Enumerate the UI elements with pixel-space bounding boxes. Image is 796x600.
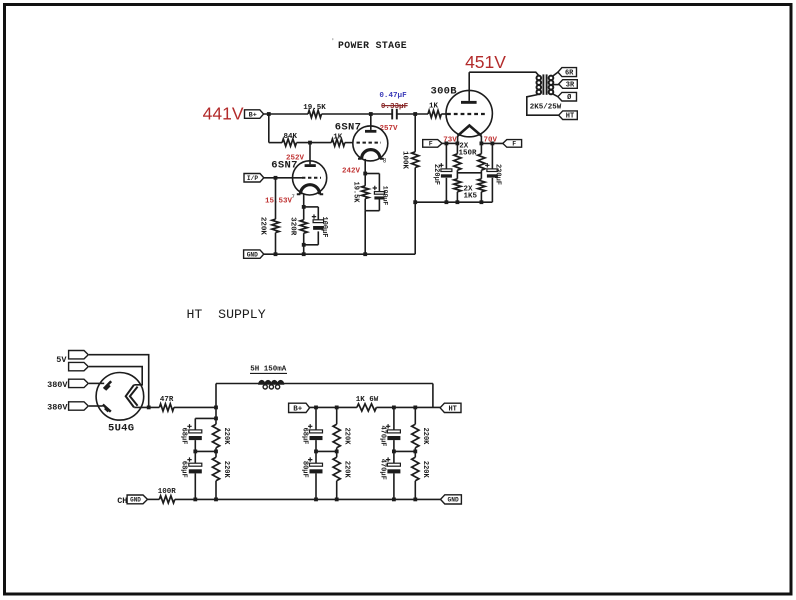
svg-text:1K5: 1K5 bbox=[463, 192, 477, 200]
svg-text:242V: 242V bbox=[342, 168, 361, 176]
svg-text:100K: 100K bbox=[400, 151, 408, 170]
svg-text:3R: 3R bbox=[566, 82, 575, 90]
svg-text:380V: 380V bbox=[47, 380, 68, 390]
svg-text:220K: 220K bbox=[258, 217, 266, 236]
svg-text:B+: B+ bbox=[293, 406, 303, 414]
svg-text:19.5K: 19.5K bbox=[303, 104, 326, 112]
svg-text:0.33µF: 0.33µF bbox=[381, 103, 409, 111]
svg-text:7: 7 bbox=[292, 193, 295, 200]
svg-text:380V: 380V bbox=[47, 403, 68, 413]
svg-text:470µF: 470µF bbox=[378, 459, 386, 480]
svg-text:68µF: 68µF bbox=[180, 428, 188, 445]
svg-text:I/P: I/P bbox=[247, 175, 258, 182]
svg-text:GND: GND bbox=[130, 497, 141, 504]
svg-text:70V: 70V bbox=[484, 136, 498, 144]
svg-text:220K: 220K bbox=[222, 461, 230, 479]
svg-text:CH: CH bbox=[117, 496, 127, 506]
svg-text:320R: 320R bbox=[289, 217, 297, 236]
svg-text:0.47µF: 0.47µF bbox=[379, 92, 407, 100]
svg-text:84K: 84K bbox=[283, 133, 297, 141]
svg-text:1K 6W: 1K 6W bbox=[356, 396, 379, 404]
svg-text:F: F bbox=[512, 141, 516, 148]
svg-text:1K: 1K bbox=[429, 103, 439, 111]
svg-text:GND: GND bbox=[247, 251, 258, 258]
svg-text:220K: 220K bbox=[342, 461, 350, 479]
svg-text:220µF: 220µF bbox=[494, 164, 502, 185]
svg-text:5H 150mA: 5H 150mA bbox=[250, 366, 287, 374]
svg-text:F: F bbox=[429, 141, 433, 148]
svg-text:100µF: 100µF bbox=[382, 186, 389, 206]
svg-text:6R: 6R bbox=[565, 70, 574, 78]
svg-text:ʼ: ʼ bbox=[331, 38, 335, 47]
svg-text:150R: 150R bbox=[458, 149, 477, 157]
svg-text:257V: 257V bbox=[379, 125, 398, 133]
svg-text:2K5/25W: 2K5/25W bbox=[530, 103, 562, 111]
svg-text:8: 8 bbox=[383, 158, 387, 165]
svg-text:5V: 5V bbox=[56, 355, 67, 365]
svg-text:470µF: 470µF bbox=[378, 425, 386, 446]
svg-text:HT SUPPLY: HT SUPPLY bbox=[187, 307, 266, 322]
svg-text:73V: 73V bbox=[443, 136, 457, 144]
svg-text:100R: 100R bbox=[158, 488, 177, 496]
svg-text:5U4G: 5U4G bbox=[108, 423, 134, 435]
svg-text:GND: GND bbox=[448, 497, 459, 504]
svg-text:252V: 252V bbox=[286, 154, 305, 162]
svg-text:100µF: 100µF bbox=[320, 216, 328, 237]
svg-text:19.5K: 19.5K bbox=[351, 181, 359, 203]
svg-text:220K: 220K bbox=[222, 428, 230, 446]
svg-text:220µF: 220µF bbox=[432, 164, 440, 185]
svg-text:HT: HT bbox=[448, 405, 456, 413]
svg-text:15,53V: 15,53V bbox=[265, 198, 293, 206]
svg-text:1K: 1K bbox=[333, 133, 343, 141]
svg-text:POWER STAGE: POWER STAGE bbox=[338, 40, 407, 51]
svg-text:47R: 47R bbox=[160, 396, 174, 404]
svg-text:220K: 220K bbox=[342, 428, 350, 446]
svg-text:HT: HT bbox=[566, 113, 574, 121]
svg-text:68µF: 68µF bbox=[300, 428, 308, 445]
svg-text:441V: 441V bbox=[203, 104, 244, 124]
svg-text:B+: B+ bbox=[249, 112, 257, 120]
svg-text:451V: 451V bbox=[465, 52, 506, 72]
svg-text:220K: 220K bbox=[421, 428, 429, 446]
svg-text:80µF: 80µF bbox=[300, 461, 308, 478]
svg-text:68µF: 68µF bbox=[180, 461, 188, 478]
svg-text:220K: 220K bbox=[421, 461, 429, 479]
